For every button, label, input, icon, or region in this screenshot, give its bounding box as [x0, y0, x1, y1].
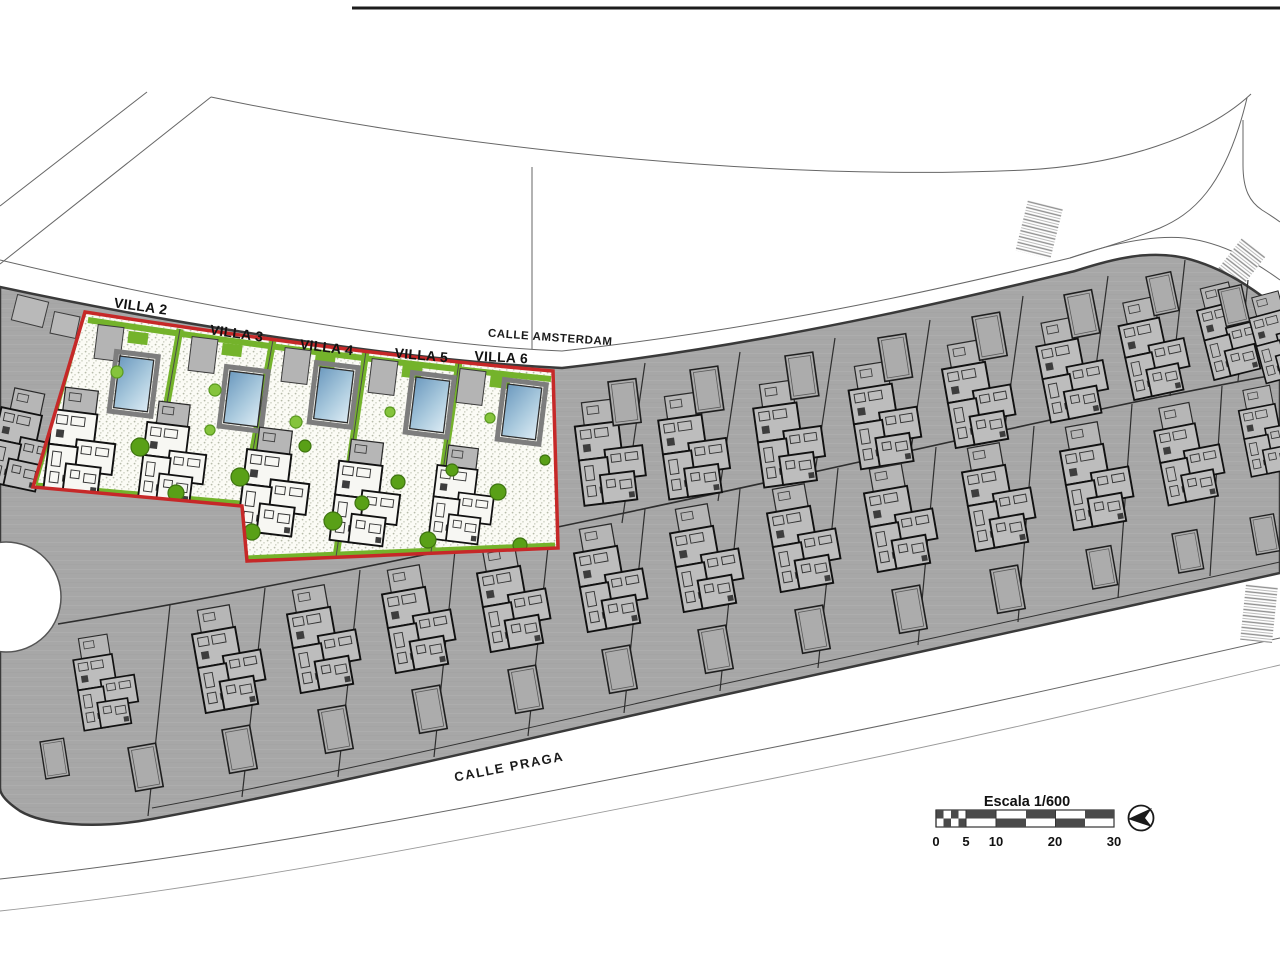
scale-bar-graphic	[936, 810, 1114, 827]
villa-6-label: VILLA 6	[474, 348, 528, 367]
scale-tick-10: 10	[989, 834, 1003, 849]
scale-bar: Escala 1/600 0 5 10 20 30	[932, 794, 1153, 849]
scale-tick-5: 5	[962, 834, 969, 849]
calle-amsterdam-label: CALLE AMSTERDAM	[488, 328, 613, 349]
north-arrow-compass-icon	[1128, 806, 1154, 831]
scale-tick-0: 0	[932, 834, 939, 849]
crosswalk-icon	[1015, 200, 1063, 259]
scale-tick-labels: 0 5 10 20 30	[932, 834, 1121, 849]
calle-praga-label: CALLE PRAGA	[453, 749, 565, 785]
crosswalk-icon	[1240, 584, 1278, 643]
site-plan-page: VILLA 2 VILLA 3 VILLA 4 VILLA 5 VILLA 6 …	[0, 0, 1280, 960]
scale-tick-30: 30	[1107, 834, 1121, 849]
scale-title: Escala 1/600	[984, 794, 1070, 810]
scale-tick-20: 20	[1048, 834, 1062, 849]
site-plan-drawing: VILLA 2 VILLA 3 VILLA 4 VILLA 5 VILLA 6 …	[0, 0, 1280, 960]
